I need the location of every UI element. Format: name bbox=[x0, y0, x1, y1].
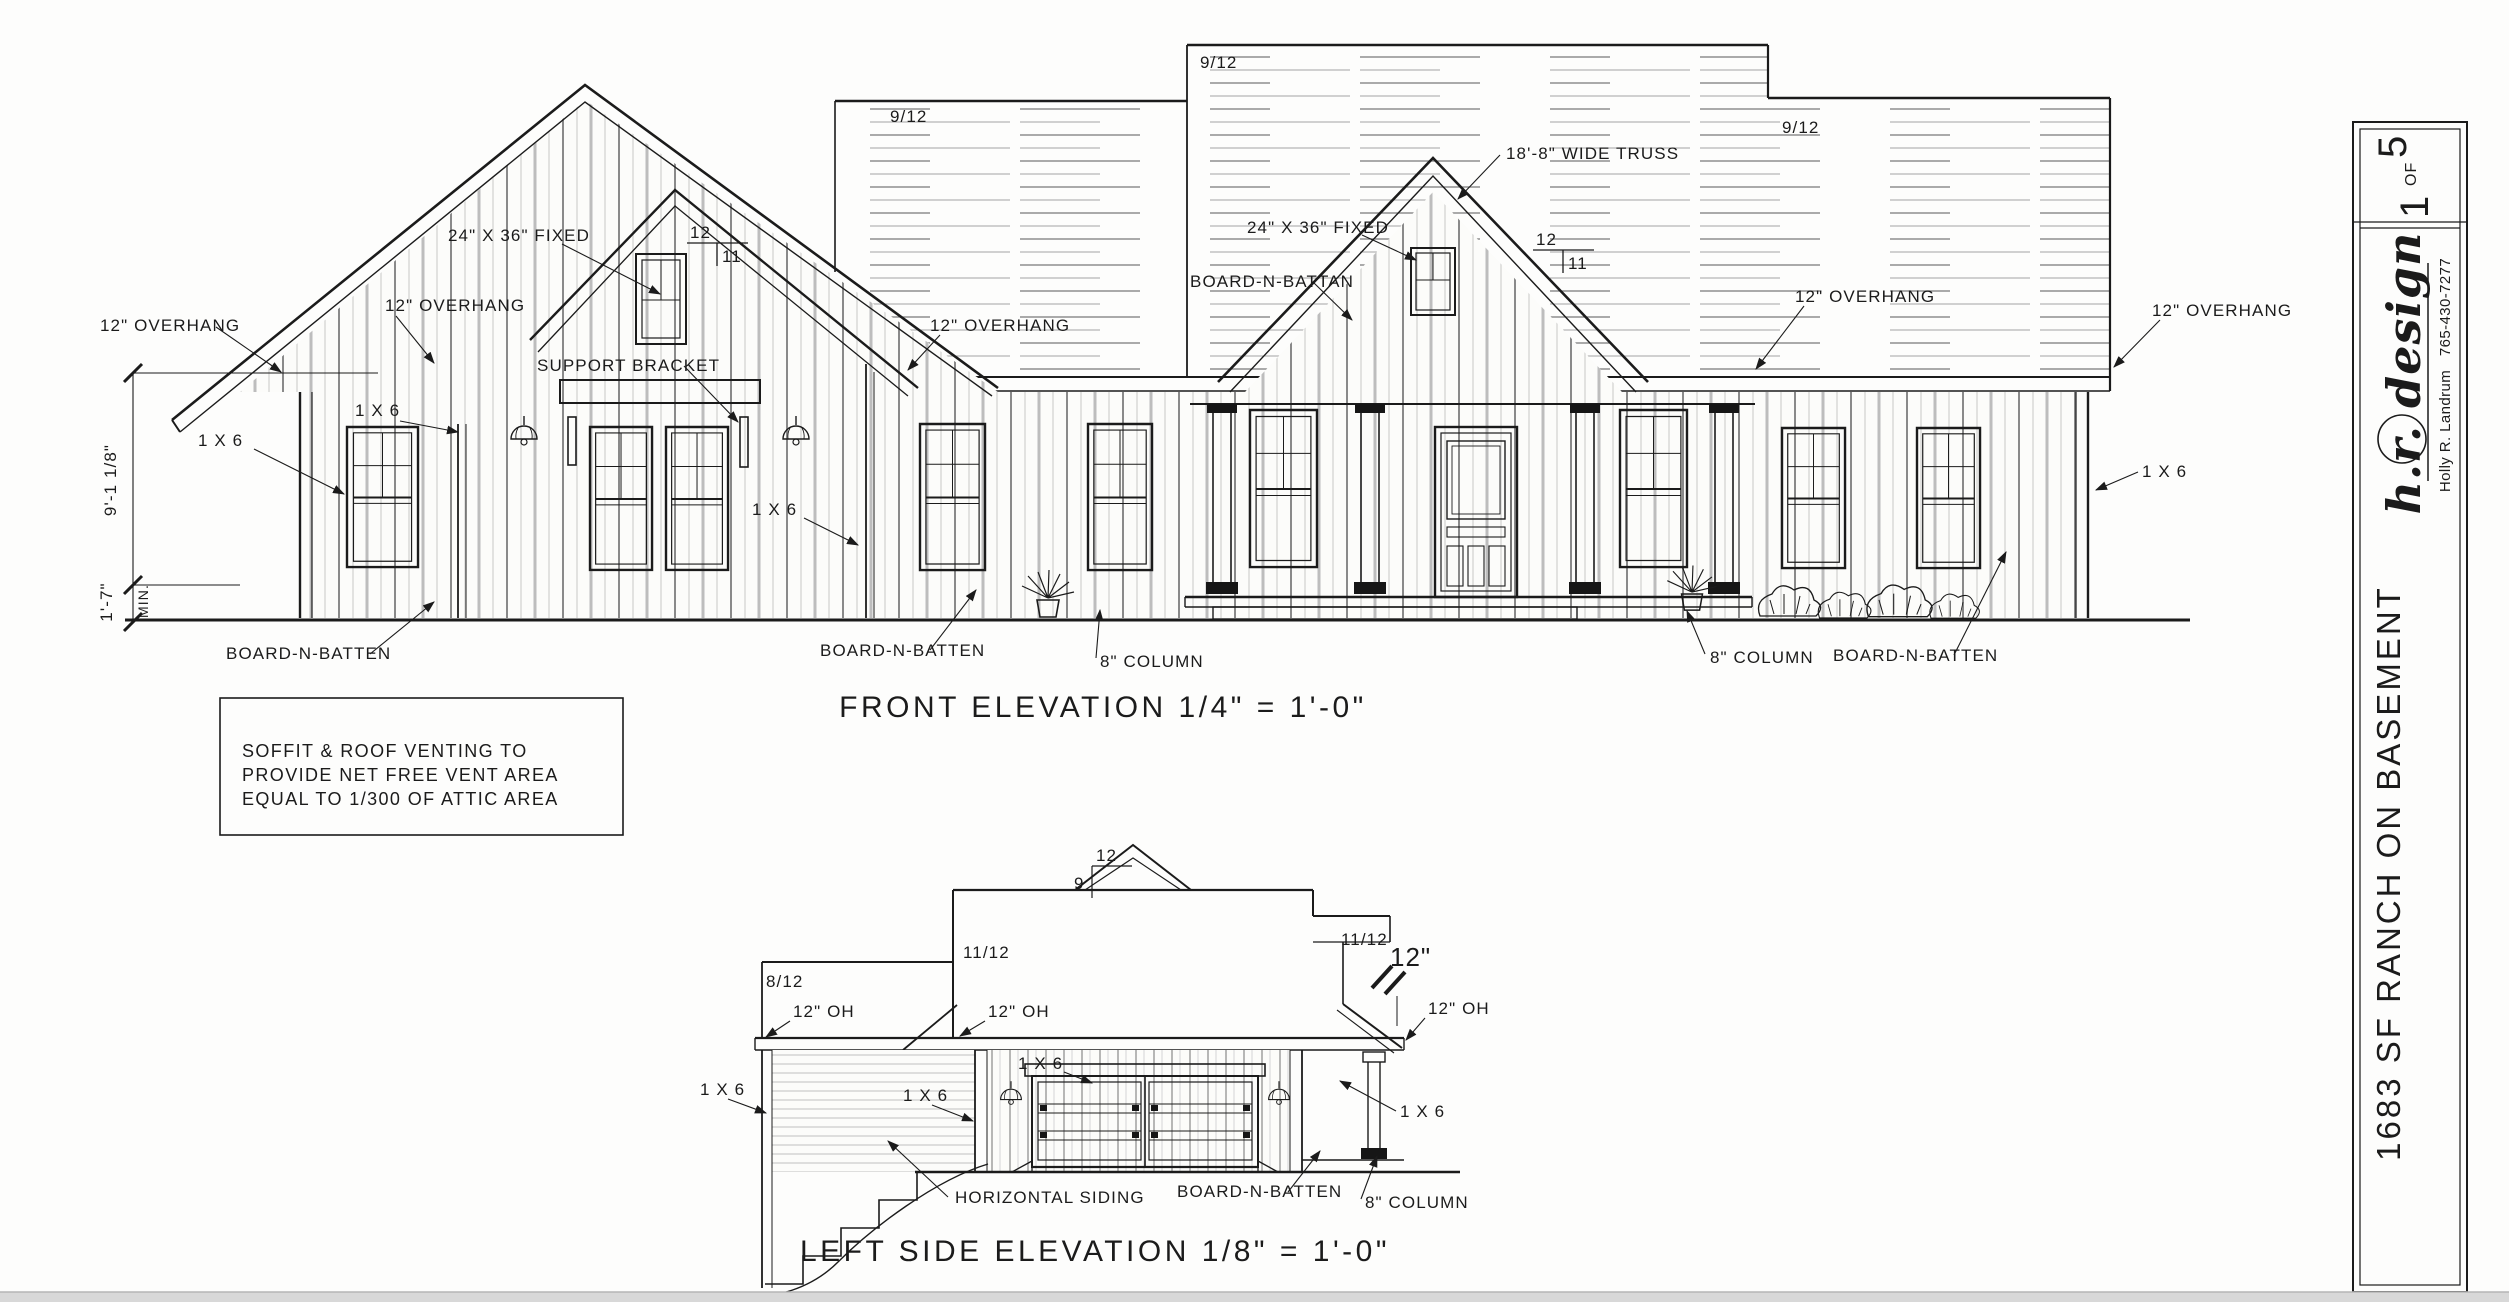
front-elevation-title: FRONT ELEVATION 1/4" = 1'-0" bbox=[839, 691, 1367, 724]
label-board-n-battan: BOARD-N-BATTAN bbox=[1190, 272, 1354, 291]
label-pitch: 11/12 bbox=[1341, 930, 1388, 949]
sheet-number-cell: 1 OF 5 bbox=[2371, 135, 2437, 218]
label-column: 8" COLUMN bbox=[1100, 652, 1204, 671]
firm-logo: h.r. design Holly R. Landrum 765-430-727… bbox=[2377, 232, 2454, 515]
designer-name: Holly R. Landrum bbox=[2437, 370, 2454, 492]
firm-phone: 765-430-7277 bbox=[2437, 258, 2454, 356]
dim-overhang-12in: 12" bbox=[1390, 942, 1431, 972]
svg-text:12: 12 bbox=[1536, 230, 1557, 249]
label-oh: 12" OH bbox=[988, 1002, 1050, 1021]
label-truss: 18'-8" WIDE TRUSS bbox=[1506, 144, 1679, 163]
note-line-1: SOFFIT & ROOF VENTING TO bbox=[242, 741, 528, 761]
label-pitch: 11/12 bbox=[963, 943, 1010, 962]
left-elevation-title: LEFT SIDE ELEVATION 1/8" = 1'-0" bbox=[800, 1235, 1390, 1268]
svg-text:12: 12 bbox=[690, 223, 711, 242]
label-fixed-window: 24" X 36" FIXED bbox=[448, 226, 590, 245]
blueprint-sheet: 9'-1 1/8" 1'-7" MIN. 9/12 9/12 9/12 12 1… bbox=[0, 0, 2509, 1302]
label-overhang: 12" OVERHANG bbox=[1795, 287, 1935, 306]
label-pitch-left: 9/12 bbox=[890, 107, 928, 126]
svg-text:12: 12 bbox=[1096, 846, 1117, 865]
note-line-3: EQUAL TO 1/300 OF ATTIC AREA bbox=[242, 789, 559, 809]
label-one-x-six: 1 X 6 bbox=[903, 1086, 948, 1105]
title-block: 1 OF 5 h.r. design Holly R. Landrum 765-… bbox=[2353, 122, 2467, 1292]
dim-wall-height: 9'-1 1/8" bbox=[101, 444, 120, 516]
svg-text:11: 11 bbox=[1568, 254, 1588, 273]
label-board-n-batten: BOARD-N-BATTEN bbox=[226, 644, 391, 663]
firm-name: h.r. design bbox=[2377, 232, 2431, 515]
side-porch-column bbox=[1302, 1052, 1404, 1160]
label-one-x-six: 1 X 6 bbox=[355, 401, 400, 420]
label-one-x-six: 1 X 6 bbox=[1018, 1054, 1063, 1073]
left-elevation-drawing: 12 9 11/12 11/12 12" 8/12 bbox=[700, 845, 1490, 1299]
label-overhang: 12" OVERHANG bbox=[100, 316, 240, 335]
note-box: SOFFIT & ROOF VENTING TO PROVIDE NET FRE… bbox=[220, 698, 623, 835]
sheet-total: 5 bbox=[2371, 135, 2415, 158]
label-horizontal-siding: HORIZONTAL SIDING bbox=[955, 1188, 1145, 1207]
dim-min-value: 1'-7" bbox=[97, 582, 116, 621]
sheet-number: 1 bbox=[2393, 195, 2437, 218]
window-edge-strip bbox=[0, 1292, 2509, 1302]
label-one-x-six: 1 X 6 bbox=[1400, 1102, 1445, 1121]
label-one-x-six: 1 X 6 bbox=[752, 500, 797, 519]
project-title: 1683 SF RANCH ON BASEMENT bbox=[2370, 585, 2407, 1161]
label-oh: 12" OH bbox=[793, 1002, 855, 1021]
dim-min-suffix: MIN. bbox=[135, 584, 151, 618]
label-one-x-six: 1 X 6 bbox=[700, 1080, 745, 1099]
grade-curve bbox=[742, 1164, 988, 1299]
label-column: 8" COLUMN bbox=[1710, 648, 1814, 667]
elevation-drawing: 9'-1 1/8" 1'-7" MIN. 9/12 9/12 9/12 12 1… bbox=[0, 0, 2509, 1302]
label-overhang: 12" OVERHANG bbox=[2152, 301, 2292, 320]
label-pitch: 8/12 bbox=[766, 972, 804, 991]
label-overhang: 12" OVERHANG bbox=[930, 316, 1070, 335]
svg-text:11: 11 bbox=[722, 247, 742, 266]
label-pitch-center: 9/12 bbox=[1200, 53, 1238, 72]
label-board-n-batten: BOARD-N-BATTEN bbox=[1833, 646, 1998, 665]
sheet-of-label: OF bbox=[2403, 162, 2420, 186]
front-elevation-drawing: 9'-1 1/8" 1'-7" MIN. 9/12 9/12 9/12 12 1… bbox=[97, 45, 2292, 724]
note-line-2: PROVIDE NET FREE VENT AREA bbox=[242, 765, 559, 785]
label-board-n-batten: BOARD-N-BATTEN bbox=[1177, 1182, 1342, 1201]
label-column: 8" COLUMN bbox=[1365, 1193, 1469, 1212]
label-pitch-right: 9/12 bbox=[1782, 118, 1820, 137]
label-oh: 12" OH bbox=[1428, 999, 1490, 1018]
label-one-x-six: 1 X 6 bbox=[198, 431, 243, 450]
label-board-n-batten: BOARD-N-BATTEN bbox=[820, 641, 985, 660]
label-one-x-six: 1 X 6 bbox=[2142, 462, 2187, 481]
label-overhang: 12" OVERHANG bbox=[385, 296, 525, 315]
label-support-bracket: SUPPORT BRACKET bbox=[537, 356, 720, 375]
label-fixed-window: 24" X 36" FIXED bbox=[1247, 218, 1389, 237]
